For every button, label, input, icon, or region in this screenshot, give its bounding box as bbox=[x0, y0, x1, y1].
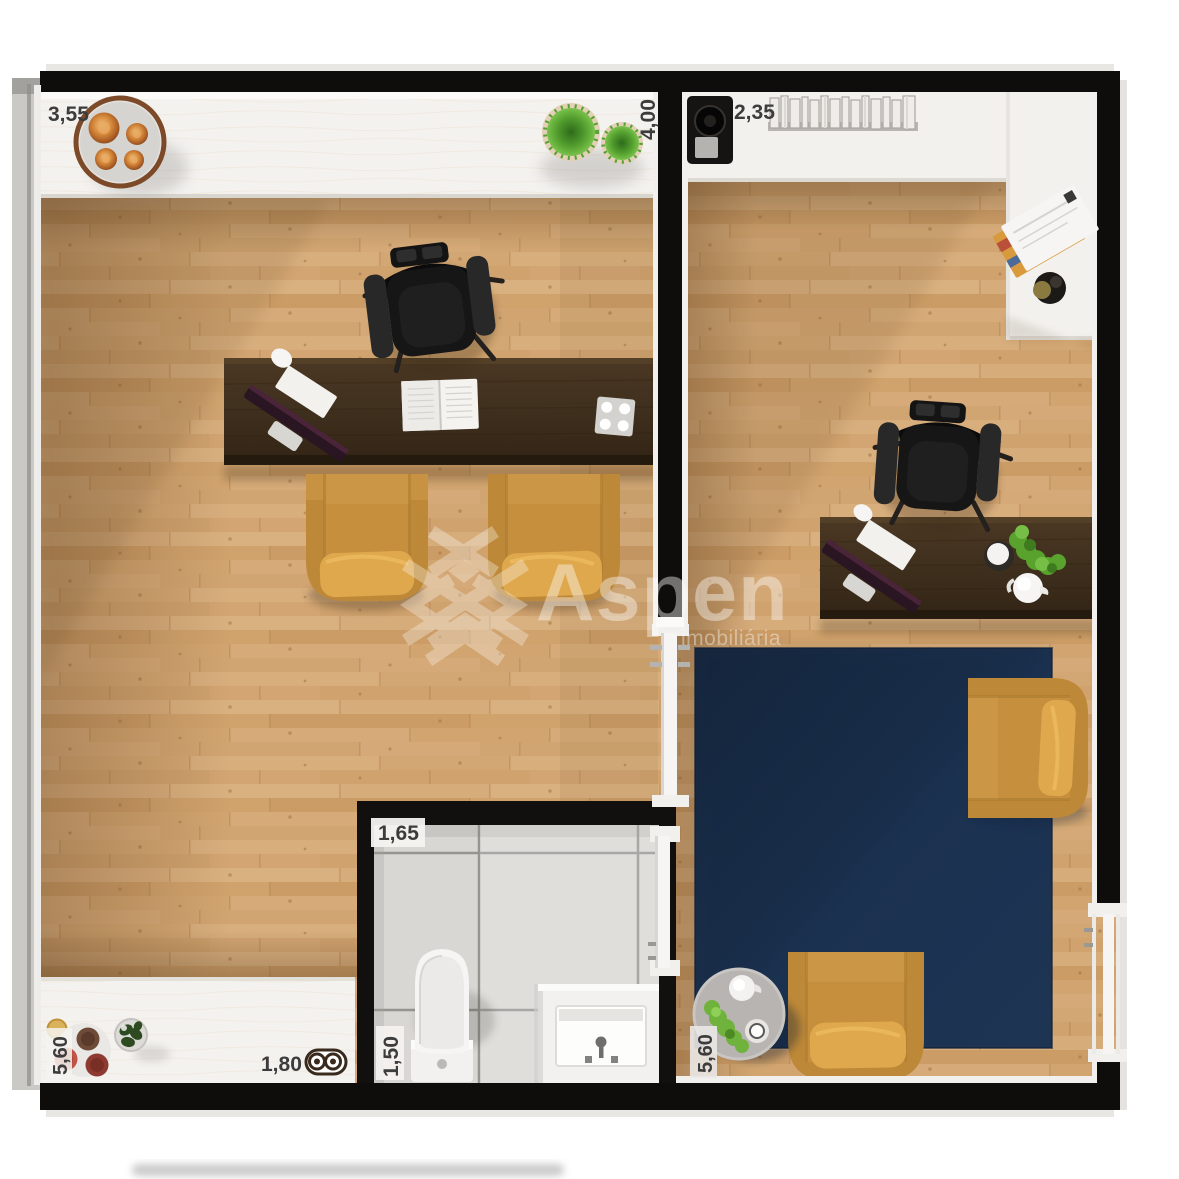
svg-text:1,80: 1,80 bbox=[261, 1053, 302, 1076]
svg-text:5,60: 5,60 bbox=[50, 1036, 72, 1075]
svg-text:1,65: 1,65 bbox=[378, 822, 419, 845]
svg-text:1,50: 1,50 bbox=[380, 1036, 403, 1077]
svg-text:4,00: 4,00 bbox=[637, 99, 660, 140]
svg-text:3,55: 3,55 bbox=[48, 103, 89, 126]
svg-text:5,60: 5,60 bbox=[695, 1034, 717, 1073]
svg-text:imobiliária: imobiliária bbox=[681, 627, 781, 650]
svg-text:2,35: 2,35 bbox=[734, 101, 775, 124]
svg-text:Aspen: Aspen bbox=[536, 548, 789, 638]
